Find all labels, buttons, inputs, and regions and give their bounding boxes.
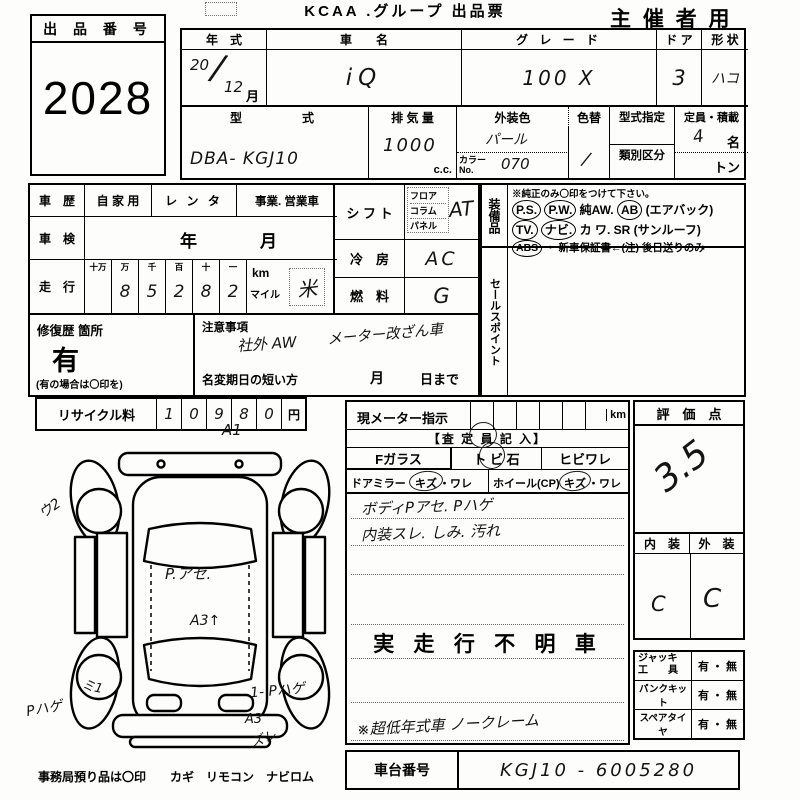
color-no-value: 070 [501,155,530,173]
mileage-label: 走 行 [30,260,85,313]
puncture-kit-value: 有 ・ 無 [692,681,743,710]
rear-sensor-right [236,461,243,468]
spare-tire-label: スペアタイヤ [635,710,692,738]
history-private: 自 家 用 [85,185,152,217]
type-approval-blank [610,127,674,145]
interior-label: 内 装 [635,532,690,554]
shift-option-floor: フロア [410,189,446,203]
puncture-kit-label: パンクキット [635,681,692,710]
mileage-digit-4: 8 [193,274,219,310]
lot-number-value: 2028 [32,43,164,153]
history-business: 事業. 営業車 [237,185,337,217]
equip-airbag: (エアバック) [646,203,714,217]
assessor-note-3: ※超低年式車 ノークレーム [357,709,540,739]
shape-label: 形 状 [702,30,748,50]
mileage-header-4: 十 [193,260,219,274]
wheel-ware: ・ワレ [588,475,621,491]
displacement-label: 排 気 量 [369,107,457,127]
equipment-line-2: TV. ナビ. カ ワ. SR (サンルーフ) [512,220,744,240]
fuel-label: 燃 料 [335,278,405,313]
inspection-year: 年 [180,227,197,252]
exterior-label: 外 装 [690,532,743,554]
jack-tools-label-cell: ジャッキ 工 具 [635,652,692,681]
model-value: DBA- KGJ10 [190,149,299,169]
unit-mark: 米 [296,272,319,303]
annotation-a1: A1 [222,421,242,439]
class-label: 類別区分 [610,145,674,165]
score-label: 評 価 点 [635,402,743,426]
score-box: 評 価 点 3.5 内 装 外 装 C C [633,400,745,640]
door-panel-outer-right [305,537,325,633]
equip-ab: AB [617,200,642,220]
shift-option-column: コラム [410,203,446,218]
door-panel-outer-left [75,537,95,633]
equip-pw: P.W. [544,200,576,220]
equipment-box: 装備品 ※純正のみ〇印をつけて下さい。 P.S. P.W. 純AW. AB (エ… [480,183,746,248]
meter-cell [493,402,516,430]
auction-sheet: KCAA .グループ 出品票 主 催 者 用 出 品 番 号 2028 年 式 … [0,0,800,800]
rename-month: 月 [370,368,384,388]
note-line [351,740,624,741]
note-line [351,545,624,546]
repaint-cell: / [569,127,610,178]
caution-line1: 社外 AW [236,331,297,356]
mileage-digit-0 [85,274,111,310]
equipment-note: ※純正のみ〇印をつけて下さい。 [512,186,744,200]
wheel-rear-right [279,489,323,533]
aircon-label: 冷 房 [335,240,405,278]
mileage-header-5: 一 [220,260,246,274]
note-line [351,574,624,575]
doors-value: 3 [657,50,702,107]
equip-sunroof: (サンルーフ) [634,223,701,237]
rear-window [144,523,256,568]
capacity-value: 4 [692,126,706,147]
headlight-right [219,695,253,711]
year-value-bottom: 12 [224,78,243,96]
caution-label: 注意事項 [202,319,248,335]
year-cell: 20 / 12 月 [182,50,267,107]
wheel-cell: ホイール(CP) キズ ・ワレ [489,470,628,494]
inspection-label: 車 検 [30,217,85,260]
tools-box: ジャッキ 工 具 有 ・ 無 パンクキット 有 ・ 無 スペアタイヤ 有 ・ 無 [633,650,745,740]
history-table: 車 歴 自 家 用 レ ン タ 事業. 営業車 車 検 年 月 走 行 十万 万… [28,183,335,315]
mileage-col-4: 十 8 [193,260,220,313]
chassis-box: 車台番号 KGJ10 - 6005280 [345,750,740,790]
equip-kawa: カ ワ. [580,223,611,237]
repair-box: 修復歴 箇所 有 (有の場合は〇印を) [28,313,195,397]
wheel-label: ホイール(CP) [493,475,560,491]
displacement-cell: 1000 c.c. [369,127,457,178]
mileage-unknown-stamp: 実 走 行 不 明 車 [347,628,628,658]
mirror-label: ドアミラー [351,475,406,491]
model-cell: DBA- KGJ10 [182,127,369,178]
shift-cell: フロア コラム パネル AT [405,185,478,240]
annotation-p-ase: P.アセ. [165,563,211,584]
mileage-header-3: 百 [166,260,192,274]
annotation-mi1: ミ1 [80,674,105,697]
meter-label: 現メーター指示 [357,408,448,427]
note-line [351,624,624,625]
fuel-value: G [405,278,478,313]
lot-number-box: 出 品 番 号 2028 [30,14,166,176]
repair-label: 修復歴 箇所 [37,320,103,339]
assessor-note-2: 内装スレ. しみ. 汚れ [361,520,501,546]
mileage-col-3: 百 2 [166,260,193,313]
mileage-digit-3: 2 [166,274,192,310]
history-rental: レ ン タ [152,185,237,217]
shift-option-panel: パネル [410,218,446,233]
rename-label: 名変期日の短い方 [202,371,298,388]
mileage-col-1: 万 8 [112,260,139,313]
mileage-digit-5: 2 [220,274,246,310]
equipment-label: 装備品 [482,185,508,246]
windshield [144,638,256,686]
history-label: 車 歴 [30,185,85,217]
mileage-col-5: 一 2 [220,260,247,313]
shape-value: ハコ [702,50,748,107]
name-value: iQ [267,50,462,107]
mileage-header-2: 千 [139,260,165,274]
meter-cell [562,402,585,430]
unit-km: km [252,266,269,280]
header-dotted-box [205,2,237,16]
shift-value: AT [448,196,474,222]
equipment-line-1: P.S. P.W. 純AW. AB (エアバック) [512,200,744,220]
equip-navi: ナビ. [541,220,576,240]
sales-point-box: セールスポイント [480,246,746,397]
score-divider [690,554,691,638]
equip-aw: 純AW. [580,203,614,217]
headlight-left [147,695,181,711]
meter-cell [516,402,539,430]
repaint-value: / [581,149,591,171]
name-label: 車 名 [267,30,462,50]
rename-day: 日まで [420,369,459,388]
color-no-label: カラーNo. [459,155,489,175]
shift-ac-fuel-table: シ フ ト フロア コラム パネル AT 冷 房 AC 燃 料 G [333,183,480,315]
shift-options-box: フロア コラム パネル [407,187,449,233]
year-month-suffix: 月 [246,86,259,105]
wheel-rear-left [77,489,121,533]
repaint-label: 色替 [569,107,610,127]
glass-label: Fガラス [347,448,452,470]
repair-value: 有 [52,339,79,378]
rear-bumper [119,453,281,475]
mileage-digit-1: 8 [112,274,138,310]
color-no-cell: カラーNo. 070 [457,152,569,178]
grade-value: 100 X [462,50,657,107]
year-value-top: 20 [190,56,209,74]
assessor-box: 現メーター指示 km 【査 定 員 記 入】 Fガラス ト ビ 石 ヒビワレ ド… [345,400,630,745]
car-diagram [55,425,345,750]
mileage-header-0: 十万 [85,260,111,274]
car-body [133,477,267,727]
note-line [351,702,624,703]
interior-value: C [651,592,666,616]
unit-mile: マイル [250,286,280,301]
meter-unit: km [606,409,626,421]
meter-cell [539,402,562,430]
caution-line2: メーター改ざん車 [326,318,443,349]
unit-mark-box: 米 [289,268,325,306]
mileage-header-1: 万 [112,260,138,274]
year-label: 年 式 [182,30,267,50]
note-line [351,658,624,659]
footer-note: 事務局預り品は〇印 カギ リモコン ナビロム [38,768,314,785]
capacity-cell: 定員・積載 4 名 トン [675,107,748,178]
equip-sr: SR [614,223,631,237]
lot-number-label: 出 品 番 号 [32,16,164,43]
rear-sensor-left [158,461,165,468]
chassis-value: KGJ10 - 6005280 [459,752,738,788]
mileage-col-0: 十万 [85,260,112,313]
load-unit: トン [714,157,740,176]
equip-tv: TV. [512,220,538,240]
inspection-cell: 年 月 [85,217,337,260]
annotation-a3b: A3 [245,712,262,727]
sales-point-label: セールスポイント [482,248,508,395]
type-approval-cell: 型式指定 類別区分 [610,107,675,178]
spec-table: 年 式 車 名 グ レ ー ド ド ア 形 状 20 / 12 月 iQ 100… [180,28,746,180]
capacity-unit: 名 [727,132,740,151]
shift-label: シ フ ト [335,185,405,240]
capacity-label: 定員・積載 [675,107,748,127]
aircon-value: AC [405,240,478,278]
inspection-month: 月 [260,227,277,252]
mileage-digit-2: 5 [139,274,165,310]
score-value: 3.5 [646,433,716,501]
jack-value: 有 ・ 無 [692,652,743,681]
annotation-a3: A3↑ [190,613,220,629]
jack-label-2: 工 具 [638,665,688,677]
color-cell: パール カラーNo. 070 [457,127,569,178]
repair-note: (有の場合は〇印を) [36,376,123,391]
jack-label-1: ジャッキ [638,653,688,665]
door-panel-inner-right [273,533,303,637]
grade-label: グ レ ー ド [462,30,657,50]
mileage-col-2: 千 5 [139,260,166,313]
door-panel-inner-left [97,533,127,637]
capacity-value-row: 4 名 [675,127,748,153]
model-label: 型 式 [182,107,369,127]
mirror-cell: ドアミラー キズ ・ワレ [347,470,489,494]
crack-label: ヒビワレ [542,448,628,470]
load-row: トン [675,153,748,178]
sheet-title: KCAA .グループ 出品票 [240,0,570,21]
equip-ps: P.S. [512,200,541,220]
color-label: 外装色 [457,107,569,127]
displacement-value: 1000 [383,135,437,156]
color-value: パール [485,129,527,149]
spare-tire-value: 有 ・ 無 [692,710,743,738]
doors-label: ド ア [657,30,702,50]
mileage-unit-cell: km マイル 米 [247,260,337,313]
displacement-unit: c.c. [434,164,452,176]
chassis-label: 車台番号 [347,752,459,788]
mirror-ware: ・ワレ [439,475,472,491]
type-approval-label: 型式指定 [610,107,674,127]
exterior-value: C [703,584,721,614]
assessor-note-1: ボディPアセ. Pハゲ [361,494,493,520]
caution-box: 注意事項 社外 AW メーター改ざん車 名変期日の短い方 月 日まで [193,313,480,397]
